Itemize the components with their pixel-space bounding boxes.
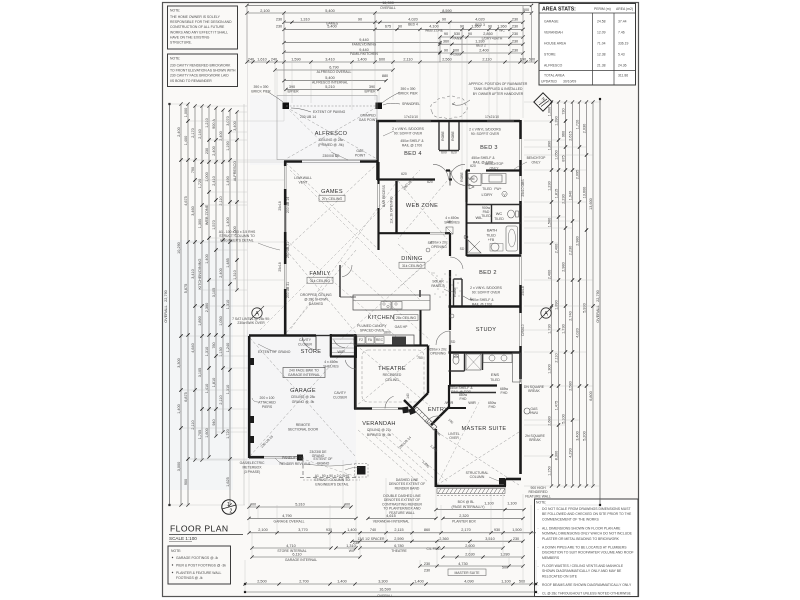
svg-text:PLANTER BOX: PLANTER BOX [452, 519, 476, 523]
svg-text:22,790: 22,790 [164, 290, 168, 302]
svg-text:230: 230 [276, 25, 282, 29]
svg-text:1,100: 1,100 [501, 579, 511, 583]
svg-text:4,290: 4,290 [568, 448, 572, 458]
svg-text:BED 2: BED 2 [479, 270, 497, 276]
svg-text:2 x VINYL S/DOORS: 2 x VINYL S/DOORS [392, 127, 424, 131]
svg-text:940: 940 [212, 419, 216, 425]
svg-text:VERANDAH INTERNAL: VERANDAH INTERNAL [373, 519, 410, 523]
svg-text:ENGINEER'S DETAIL: ENGINEER'S DETAIL [220, 238, 253, 242]
svg-text:5,200: 5,200 [582, 431, 586, 441]
svg-text:1,360: 1,360 [471, 25, 481, 29]
svg-text:2,030: 2,030 [582, 124, 586, 134]
svg-text:1,400: 1,400 [205, 254, 209, 264]
svg-text:OVERALL: OVERALL [380, 6, 396, 10]
svg-text:ROOF BEAMS ARE SHOWN DIAGRAMMA: ROOF BEAMS ARE SHOWN DIAGRAMMATICALLY ON… [542, 583, 632, 587]
svg-text:230: 230 [512, 48, 518, 52]
svg-text:21.38: 21.38 [597, 64, 606, 68]
svg-text:2,615: 2,615 [568, 131, 572, 141]
svg-text:ROBE: ROBE [451, 130, 455, 140]
svg-text:RESPONSIBLE FOR THE DESIGN AND: RESPONSIBLE FOR THE DESIGN AND [170, 20, 232, 24]
svg-text:OPENING: OPENING [431, 245, 447, 249]
svg-text:1,310: 1,310 [205, 347, 209, 357]
svg-text:GARAGE OVERALL: GARAGE OVERALL [273, 519, 304, 523]
svg-text:-: - [538, 591, 539, 595]
svg-text:GAS: GAS [356, 149, 364, 153]
svg-text:STORE: STORE [301, 349, 322, 355]
svg-text:860: 860 [424, 528, 430, 532]
svg-text:240: 240 [271, 57, 277, 61]
svg-text:I/S BOND TO REMAINDER: I/S BOND TO REMAINDER [170, 79, 212, 83]
svg-text:1,000: 1,000 [547, 107, 551, 117]
svg-text:NOTE:: NOTE: [170, 9, 180, 13]
svg-text:FOOTINGS @ -lk: FOOTINGS @ -lk [176, 576, 203, 580]
svg-text:SD: SD [451, 340, 456, 344]
svg-text:4 x 450w: 4 x 450w [324, 360, 338, 364]
svg-text:4,020: 4,020 [408, 18, 418, 22]
svg-text:1,815: 1,815 [554, 189, 558, 199]
svg-text:MH: MH [447, 220, 453, 224]
svg-text:31k CEILING: 31k CEILING [310, 279, 330, 283]
svg-text:BREAK: BREAK [529, 438, 541, 442]
svg-text:TILED: TILED [482, 187, 492, 191]
svg-text:4,020: 4,020 [575, 328, 579, 338]
svg-text:HOUSE AREA: HOUSE AREA [544, 42, 567, 46]
svg-text:GARAGE INTERNAL: GARAGE INTERNAL [288, 373, 320, 377]
svg-text:KITCHEN/DINING: KITCHEN/DINING [198, 258, 202, 289]
svg-text:12.09: 12.09 [597, 31, 606, 35]
svg-text:7.46: 7.46 [618, 31, 625, 35]
svg-text:SPANDREL: SPANDREL [402, 102, 420, 106]
svg-text:3,300: 3,300 [378, 579, 388, 583]
svg-text:10,290: 10,290 [177, 242, 181, 254]
svg-text:THE HOME OWNER IS SOLELY: THE HOME OWNER IS SOLELY [170, 15, 221, 19]
svg-text:1,705: 1,705 [198, 430, 202, 440]
svg-text:CEILING @ 27c: CEILING @ 27c [367, 428, 392, 432]
svg-text:8,300: 8,300 [554, 451, 558, 461]
svg-text:ROBE: ROBE [460, 171, 464, 181]
svg-text:1,730: 1,730 [547, 324, 551, 334]
svg-text:ALFRESCO OVERALL: ALFRESCO OVERALL [317, 70, 352, 74]
svg-text:PLANTER & FEATURE WALL: PLANTER & FEATURE WALL [176, 571, 222, 575]
svg-text:90: 90 [358, 18, 362, 22]
svg-text:500: 500 [523, 8, 529, 12]
svg-text:GARAGE: GARAGE [290, 388, 316, 394]
svg-text:TO FRONT ELEVATION AS SHOWN WI: TO FRONT ELEVATION AS SHOWN WITH [170, 69, 236, 73]
svg-text:LOW WALL: LOW WALL [294, 176, 312, 180]
svg-text:2,110: 2,110 [191, 420, 195, 429]
svg-text:RELOCATED ON SITE: RELOCATED ON SITE [542, 574, 578, 578]
svg-text:SOLAR: SOLAR [432, 280, 444, 284]
svg-text:VENT: VENT [298, 181, 307, 185]
svg-text:2,140: 2,140 [198, 129, 202, 139]
svg-text:FA: FA [368, 338, 373, 342]
svg-text:5,675: 5,675 [184, 284, 188, 294]
svg-text:390 x 390: 390 x 390 [401, 87, 416, 91]
svg-text:31k CEILING: 31k CEILING [402, 264, 422, 268]
svg-text:5,210: 5,210 [325, 85, 335, 89]
svg-text:1,720: 1,720 [575, 120, 579, 130]
svg-text:5,400: 5,400 [327, 25, 337, 29]
svg-text:1,100: 1,100 [507, 501, 517, 505]
svg-text:2,400: 2,400 [554, 244, 558, 254]
svg-text:VERANDAH: VERANDAH [544, 31, 563, 35]
svg-text:675: 675 [385, 25, 391, 29]
svg-text:CAVITY: CAVITY [334, 391, 347, 395]
svg-text:1: 1 [227, 502, 230, 508]
svg-text:COMMENCEMENT OF THE WORKS: COMMENCEMENT OF THE WORKS [542, 517, 600, 521]
svg-text:RECESSED: RECESSED [383, 373, 402, 377]
svg-text:OVER: OVER [449, 436, 459, 440]
svg-text:1,400: 1,400 [337, 579, 347, 583]
svg-text:WEB ZONE: WEB ZONE [406, 203, 438, 209]
svg-text:/WIR: /WIR [445, 400, 454, 405]
svg-text:BOX @ BL: BOX @ BL [458, 500, 475, 504]
svg-text:2,680: 2,680 [547, 416, 551, 426]
svg-text:RAIL @ 1700: RAIL @ 1700 [472, 302, 492, 306]
svg-text:GARAGE: GARAGE [544, 20, 559, 24]
svg-text:2,410: 2,410 [212, 176, 216, 186]
svg-text:750: 750 [417, 356, 423, 360]
svg-text:2,110: 2,110 [219, 196, 223, 205]
svg-text:500: 500 [519, 579, 525, 583]
svg-text:1,490: 1,490 [226, 176, 230, 186]
svg-text:4,790: 4,790 [282, 514, 292, 518]
svg-text:900 A: 900 A [212, 119, 216, 129]
svg-text:390 x 390: 390 x 390 [254, 85, 269, 89]
svg-text:5.43: 5.43 [618, 53, 625, 57]
svg-text:SD: SD [460, 247, 465, 251]
svg-text:-: - [538, 564, 539, 568]
svg-text:GARAGE FOOTINGS @ -lk: GARAGE FOOTINGS @ -lk [176, 556, 218, 560]
svg-text:CAVITY: CAVITY [299, 338, 312, 342]
svg-text:500: 500 [529, 57, 535, 61]
svg-text:1,310: 1,310 [226, 300, 230, 310]
svg-text:2,300: 2,300 [205, 303, 209, 313]
svg-text:MEMBERS: MEMBERS [542, 556, 560, 560]
svg-text:450w SHELF &: 450w SHELF & [470, 298, 494, 302]
svg-text:NOMINAL DIMENSIONS ONLY WHICH: NOMINAL DIMENSIONS ONLY WHICH DO NOT INC… [542, 532, 633, 536]
svg-text:B/PAVED @ -9k: B/PAVED @ -9k [367, 433, 392, 437]
svg-text:CL @ 28c THROUGHOUT UNLESS NOT: CL @ 28c THROUGHOUT UNLESS NOTED OTHERWI… [542, 592, 632, 596]
svg-text:875: 875 [561, 155, 565, 161]
svg-text:4,675: 4,675 [184, 196, 188, 206]
svg-text:390: 390 [369, 85, 375, 89]
svg-text:AREA (m2): AREA (m2) [616, 7, 633, 11]
svg-text:2,115: 2,115 [394, 528, 403, 532]
svg-text:GAS POINT: GAS POINT [359, 118, 377, 122]
svg-text:WM: WM [468, 177, 474, 181]
svg-text:2,360: 2,360 [439, 537, 449, 541]
svg-text:230: 230 [512, 18, 518, 22]
svg-text:(PRIMED @ -9k): (PRIMED @ -9k) [318, 143, 343, 147]
svg-text:3,510: 3,510 [485, 537, 495, 541]
svg-text:GRANO: GRANO [317, 462, 330, 466]
svg-text:ONLY: ONLY [490, 166, 500, 170]
svg-text:880: 880 [382, 74, 388, 78]
svg-text:2,170: 2,170 [191, 128, 195, 138]
svg-text:2,980: 2,980 [575, 236, 579, 246]
svg-text:1800: 1800 [383, 331, 391, 335]
svg-text:200 x 100: 200 x 100 [260, 396, 275, 400]
svg-text:740: 740 [370, 528, 376, 532]
svg-text:2,740: 2,740 [568, 311, 572, 321]
svg-text:600: 600 [441, 151, 447, 155]
svg-text:FHD: FHD [501, 391, 509, 395]
svg-text:3,000: 3,000 [177, 462, 181, 472]
svg-text:2,110: 2,110 [219, 395, 223, 404]
svg-text:3,400: 3,400 [233, 121, 237, 131]
svg-text:1,590: 1,590 [291, 57, 301, 61]
svg-text:B/PIER: B/PIER [287, 90, 299, 94]
svg-text:PANELIFT DR: PANELIFT DR [282, 456, 304, 460]
svg-text:FW+: FW+ [494, 187, 501, 191]
svg-text:2,100: 2,100 [258, 528, 268, 532]
svg-text:STRUCTURE.: STRUCTURE. [170, 41, 192, 45]
svg-text:2,320: 2,320 [459, 514, 469, 518]
svg-text:1,610: 1,610 [257, 57, 267, 61]
svg-text:6,780: 6,780 [394, 544, 404, 548]
svg-text:13,600: 13,600 [582, 187, 586, 199]
svg-text:1,300: 1,300 [198, 219, 202, 229]
svg-text:2,230: 2,230 [561, 194, 565, 204]
svg-text:BATH: BATH [487, 228, 497, 233]
svg-text:620: 620 [427, 180, 433, 184]
svg-text:1,240: 1,240 [226, 343, 230, 353]
svg-text:BED 3: BED 3 [480, 145, 498, 151]
svg-text:ALFRESCO: ALFRESCO [233, 161, 237, 182]
svg-text:17x21/10: 17x21/10 [485, 115, 499, 119]
svg-text:90: SOFFIT OVER: 90: SOFFIT OVER [471, 132, 500, 136]
svg-text:1,310: 1,310 [226, 385, 230, 395]
svg-text:37.44: 37.44 [618, 20, 627, 24]
svg-text:STORE: STORE [544, 53, 556, 57]
svg-text:600: 600 [379, 57, 385, 61]
svg-text:71.04: 71.04 [597, 42, 606, 46]
svg-text:RENDER BAND: RENDER BAND [395, 486, 420, 490]
svg-text:2,110: 2,110 [482, 57, 491, 61]
svg-text:EXTENT OF PAVING: EXTENT OF PAVING [313, 110, 346, 114]
svg-text:BED 4: BED 4 [404, 151, 422, 157]
svg-text:GAS HP: GAS HP [395, 325, 409, 329]
svg-text:2,170: 2,170 [461, 528, 471, 532]
svg-text:OVERALL: OVERALL [596, 305, 600, 323]
svg-text:1,810: 1,810 [212, 378, 216, 388]
svg-text:WORKS AND ANY EFFECT IT SHALL: WORKS AND ANY EFFECT IT SHALL [170, 30, 228, 34]
svg-text:3,400: 3,400 [575, 431, 579, 441]
svg-text:1,730: 1,730 [561, 324, 565, 334]
svg-text:BRICK PIER: BRICK PIER [251, 90, 271, 94]
svg-text:90: 90 [442, 18, 446, 22]
svg-text:1,570: 1,570 [212, 220, 216, 230]
svg-text:2 x VINYL S/DOORS: 2 x VINYL S/DOORS [470, 286, 502, 290]
svg-text:DASHED: DASHED [309, 302, 324, 306]
svg-text:450w x 20c: 450w x 20c [430, 241, 447, 245]
svg-text:FEATURE WALL: FEATURE WALL [525, 494, 551, 498]
svg-text:27c CEILING: 27c CEILING [322, 197, 342, 201]
svg-text:13/0 1/2 SPACER: 13/0 1/2 SPACER [358, 537, 385, 541]
svg-text:STUDY: STUDY [476, 327, 496, 333]
svg-text:2,095: 2,095 [575, 170, 579, 180]
svg-text:3,460: 3,460 [191, 206, 195, 216]
svg-text:BENCHTOP: BENCHTOP [527, 156, 547, 160]
svg-text:COLUMN: COLUMN [470, 475, 485, 479]
svg-text:250 UB 31: 250 UB 31 [286, 242, 290, 258]
svg-text:2 x VINYL S/DOORS: 2 x VINYL S/DOORS [469, 128, 501, 132]
svg-text:1,050: 1,050 [219, 316, 223, 326]
svg-text:ALFRESCO INTERNAL: ALFRESCO INTERNAL [312, 80, 348, 84]
svg-text:230: 230 [424, 569, 430, 573]
svg-text:1,600: 1,600 [205, 428, 209, 438]
svg-text:2,980: 2,980 [561, 262, 565, 272]
svg-text:BY OWNER AFTER HANDOVER: BY OWNER AFTER HANDOVER [473, 92, 524, 96]
svg-text:400: 400 [344, 503, 350, 507]
svg-text:1,400: 1,400 [357, 57, 367, 61]
svg-text:PIER & POST FOOTINGS @ -3k: PIER & POST FOOTINGS @ -3k [176, 564, 226, 568]
svg-text:230: 230 [512, 25, 518, 29]
svg-text:4,640: 4,640 [191, 343, 195, 353]
svg-text:6,790: 6,790 [329, 65, 339, 69]
svg-text:9,440: 9,440 [359, 38, 369, 42]
svg-text:CLOSER: CLOSER [298, 343, 312, 347]
svg-text:1,300: 1,300 [547, 364, 551, 374]
svg-text:12.38: 12.38 [597, 53, 606, 57]
svg-text:2,400: 2,400 [219, 268, 223, 278]
svg-text:960: 960 [561, 131, 565, 137]
svg-text:230: 230 [512, 32, 518, 36]
svg-text:6,110: 6,110 [292, 553, 301, 557]
svg-text:9,440: 9,440 [359, 48, 369, 52]
svg-text:230/0/8 BD: 230/0/8 BD [323, 154, 341, 158]
svg-text:2,400: 2,400 [479, 48, 489, 52]
svg-text:200 UB 31: 200 UB 31 [286, 282, 290, 298]
svg-text:24.58: 24.58 [597, 20, 606, 24]
svg-text:BE FOLLOWED AND CHECKED ON SIT: BE FOLLOWED AND CHECKED ON SITE PRIOR TO… [542, 512, 632, 516]
svg-text:SPACED OVEN: SPACED OVEN [360, 329, 385, 333]
svg-text:SHOWN DIAGRAMMATICALLY ONLY AN: SHOWN DIAGRAMMATICALLY ONLY AND MAY BE [542, 569, 622, 573]
svg-text:311.86: 311.86 [618, 74, 628, 78]
svg-text:ONLY: ONLY [532, 161, 542, 165]
svg-text:EXTENT OF: EXTENT OF [314, 457, 333, 461]
svg-text:1,190: 1,190 [226, 141, 230, 151]
svg-text:BREAK: BREAK [528, 389, 540, 393]
svg-text:4,730: 4,730 [458, 562, 468, 566]
svg-text:DO NOT SCALE FROM DRAWINGS DIM: DO NOT SCALE FROM DRAWINGS DIMENSIONS MU… [542, 507, 631, 511]
svg-text:-: - [538, 545, 539, 549]
svg-text:25x18: 25x18 [278, 262, 282, 271]
svg-text:4,710: 4,710 [286, 544, 296, 548]
svg-text:ENS: ENS [491, 372, 499, 377]
svg-text:90: SOFFIT OVER: 90: SOFFIT OVER [472, 290, 501, 294]
svg-text:B/PIER: B/PIER [364, 90, 376, 94]
svg-text:1,400: 1,400 [184, 136, 188, 146]
svg-text:1,150: 1,150 [547, 466, 551, 476]
svg-text:1,000: 1,000 [184, 108, 188, 118]
svg-text:FLOOR PLAN: FLOOR PLAN [170, 524, 228, 534]
svg-text:L'DRY: L'DRY [481, 192, 492, 197]
svg-text:RENDER REVEALS: RENDER REVEALS [280, 462, 312, 466]
svg-text:2,400: 2,400 [177, 127, 181, 137]
svg-text:3,105: 3,105 [198, 368, 202, 378]
svg-text:W/P: W/P [337, 349, 345, 354]
svg-text:1,940: 1,940 [568, 191, 572, 201]
svg-text:17x21/10: 17x21/10 [404, 115, 418, 119]
svg-text:140: 140 [406, 393, 410, 399]
svg-text:2,230: 2,230 [568, 246, 572, 256]
svg-text:BED 4: BED 4 [408, 23, 418, 27]
svg-text:CRIMPED: CRIMPED [360, 114, 376, 118]
svg-text:1,890: 1,890 [198, 316, 202, 326]
svg-text:ROBE: ROBE [453, 286, 457, 296]
svg-text:WIR: WIR [468, 400, 476, 405]
svg-text:230 CAVITY RENDERED BRICKWORK: 230 CAVITY RENDERED BRICKWORK [170, 64, 231, 68]
svg-text:1,400: 1,400 [347, 528, 357, 532]
svg-text:400: 400 [250, 503, 256, 507]
svg-text:ENGINEER'S DETAIL: ENGINEER'S DETAIL [315, 482, 348, 486]
svg-text:ALL DIMENSIONS SHOWN ON FLOOR: ALL DIMENSIONS SHOWN ON FLOOR PLAN ARE [542, 527, 621, 531]
svg-text:200 UB 14: 200 UB 14 [286, 197, 290, 213]
svg-text:FEATURE WALL: FEATURE WALL [389, 511, 415, 515]
svg-text:GAMES: GAMES [321, 189, 343, 195]
svg-text:FAMILY/DINING: FAMILY/DINING [352, 43, 377, 47]
svg-text:2,110: 2,110 [554, 353, 558, 362]
svg-text:FAMILY/KITCHEN: FAMILY/KITCHEN [350, 52, 378, 56]
svg-text:TILED: TILED [494, 217, 504, 221]
svg-text:1,580: 1,580 [547, 218, 551, 228]
svg-text:UPDATED: UPDATED [541, 80, 558, 84]
svg-text:-: - [538, 507, 539, 511]
svg-text:FHD: FHD [489, 405, 497, 409]
svg-text:25x18: 25x18 [521, 286, 525, 295]
svg-text:5,100: 5,100 [561, 414, 565, 424]
svg-text:16,590: 16,590 [379, 587, 391, 591]
svg-text:OVERALL: OVERALL [164, 305, 168, 323]
svg-text:28c CEILING: 28c CEILING [396, 316, 416, 320]
svg-text:FLOOR WASTES / CEILING VENTS A: FLOOR WASTES / CEILING VENTS AND MANHOLE [542, 564, 624, 568]
svg-text:C/L PASS: C/L PASS [427, 547, 443, 551]
svg-text:22,790: 22,790 [596, 290, 600, 302]
svg-text:6,800: 6,800 [589, 391, 593, 401]
svg-text:CLOSER: CLOSER [333, 396, 347, 400]
svg-text:25x10 OBS: 25x10 OBS [521, 179, 525, 197]
svg-text:90: 90 [444, 32, 448, 36]
svg-text:METERBOX: METERBOX [242, 466, 262, 470]
svg-text:1,100: 1,100 [484, 501, 494, 505]
svg-text:D/S610: D/S610 [521, 324, 525, 335]
svg-text:13,600: 13,600 [589, 198, 593, 210]
svg-text:3,105: 3,105 [212, 288, 216, 298]
svg-text:HWU: HWU [530, 411, 539, 415]
svg-text:1,485: 1,485 [226, 258, 230, 268]
svg-text:2,100: 2,100 [260, 9, 270, 13]
svg-text:2,700: 2,700 [299, 579, 309, 583]
svg-text:90: 90 [444, 48, 448, 52]
svg-text:ALFRESCO: ALFRESCO [315, 131, 348, 137]
svg-text:2,400: 2,400 [547, 270, 551, 280]
svg-text:3,300: 3,300 [177, 358, 181, 368]
svg-text:3,770: 3,770 [298, 528, 308, 532]
svg-text:3,410: 3,410 [191, 269, 195, 279]
svg-text:900: 900 [184, 479, 188, 485]
svg-text:1,720: 1,720 [226, 429, 230, 439]
svg-text:230: 230 [512, 40, 518, 44]
svg-text:16,390: 16,390 [382, 1, 394, 5]
svg-text:1,410: 1,410 [205, 384, 209, 394]
svg-text:MASTER SUITE: MASTER SUITE [462, 426, 507, 432]
svg-text:OPENING: OPENING [430, 352, 446, 356]
svg-text:620: 620 [401, 172, 407, 176]
svg-text:REMOTE: REMOTE [296, 423, 311, 427]
svg-text:1,890: 1,890 [547, 141, 551, 151]
